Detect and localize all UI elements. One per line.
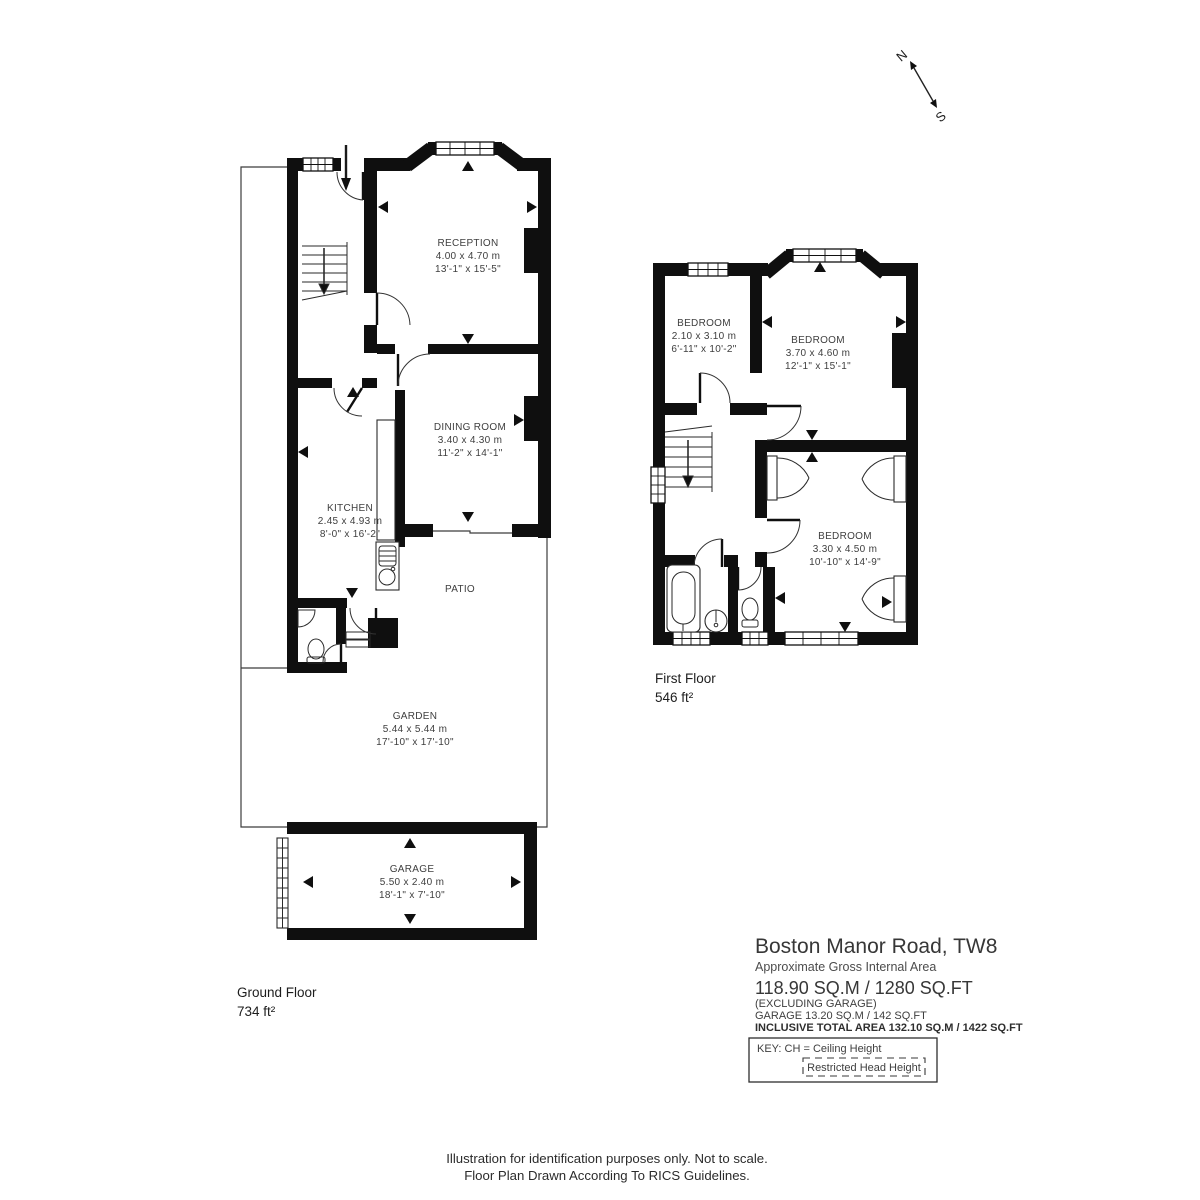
- svg-text:18'-1" x 7'-10": 18'-1" x 7'-10": [379, 890, 445, 901]
- key-box: KEY: CH = Ceiling Height Restricted Head…: [749, 1038, 937, 1082]
- room-label-garage: GARAGE 5.50 x 2.40 m 18'-1" x 7'-10": [379, 864, 445, 901]
- svg-text:5.50 x 2.40 m: 5.50 x 2.40 m: [380, 877, 445, 888]
- ground-floor-plan: RECEPTION 4.00 x 4.70 m 13'-1" x 15'-5" …: [237, 142, 551, 1019]
- svg-text:BEDROOM: BEDROOM: [677, 318, 731, 329]
- gf-chimney-dining: [524, 396, 538, 441]
- compass-south-label: S: [933, 108, 950, 125]
- ff-stairs-arrow: [683, 476, 693, 487]
- compass-south-arrowhead: [930, 99, 937, 108]
- kitchen-door: [334, 388, 362, 416]
- svg-text:10'-10" x 14'-9": 10'-10" x 14'-9": [809, 557, 881, 568]
- svg-text:BEDROOM: BEDROOM: [818, 531, 872, 542]
- key-restricted-label: Restricted Head Height: [807, 1062, 921, 1074]
- kitchen-sink: [376, 542, 399, 590]
- compass-north-label: N: [893, 47, 910, 65]
- svg-text:KITCHEN: KITCHEN: [327, 503, 373, 514]
- bedroom3-wardrobe-left: [767, 456, 809, 500]
- bathroom-sink: [705, 610, 727, 632]
- key-label: KEY: CH = Ceiling Height: [757, 1043, 881, 1055]
- svg-text:BEDROOM: BEDROOM: [791, 335, 845, 346]
- compass: N S: [893, 47, 949, 125]
- hall-window: [303, 158, 333, 171]
- footer-line1: Illustration for identification purposes…: [446, 1151, 768, 1166]
- svg-text:3.70 x 4.60 m: 3.70 x 4.60 m: [786, 348, 851, 359]
- svg-text:GARAGE: GARAGE: [390, 864, 435, 875]
- bathroom-window: [673, 632, 710, 645]
- room-label-bedroom3: BEDROOM 3.30 x 4.50 m 10'-10" x 14'-9": [809, 531, 881, 568]
- gf-walls: [287, 142, 551, 673]
- bedroom3-door: [767, 520, 800, 553]
- svg-text:DINING ROOM: DINING ROOM: [434, 422, 506, 433]
- compass-north-arrowhead: [910, 61, 917, 70]
- gf-stairs: [302, 242, 347, 300]
- inclusive-area: INCLUSIVE TOTAL AREA 132.10 SQ.M / 1422 …: [755, 1022, 1023, 1034]
- svg-text:11'-2" x 14'-1": 11'-2" x 14'-1": [437, 448, 502, 459]
- wc-window: [742, 632, 768, 645]
- gf-stairs-arrow: [319, 284, 329, 294]
- svg-text:5.44 x 5.44 m: 5.44 x 5.44 m: [383, 724, 448, 735]
- bedroom2-bay-window: [793, 249, 856, 262]
- patio-threshold: [433, 531, 512, 533]
- room-label-reception: RECEPTION 4.00 x 4.70 m 13'-1" x 15'-5": [435, 238, 501, 275]
- gf-chimney-reception: [524, 228, 538, 273]
- room-label-dining: DINING ROOM 3.40 x 4.30 m 11'-2" x 14'-1…: [434, 422, 506, 459]
- svg-text:3.40 x 4.30 m: 3.40 x 4.30 m: [438, 435, 503, 446]
- property-address: Boston Manor Road, TW8: [755, 935, 997, 958]
- gf-wc-basin: [298, 610, 315, 627]
- garage-door: [277, 838, 288, 928]
- first-floor-area: 546 ft²: [655, 690, 694, 705]
- svg-text:GARDEN: GARDEN: [393, 711, 438, 722]
- bedroom1-door: [700, 373, 730, 403]
- ff-wc-door: [738, 567, 761, 590]
- garage-area: GARAGE 13.20 SQ.M / 142 SQ.FT: [755, 1010, 927, 1022]
- room-label-bedroom1: BEDROOM 2.10 x 3.10 m 6'-11" x 10'-2": [671, 318, 736, 355]
- room-label-kitchen: KITCHEN 2.45 x 4.93 m 8'-0" x 16'-2": [318, 503, 383, 540]
- gross-area: 118.90 SQ.M / 1280 SQ.FT: [755, 978, 973, 998]
- footer: Illustration for identification purposes…: [446, 1151, 768, 1183]
- floorplan-page: N S: [0, 0, 1200, 1200]
- ff-stairs: [665, 426, 712, 492]
- svg-text:13'-1" x 15'-5": 13'-1" x 15'-5": [435, 264, 501, 275]
- wc-door: [323, 644, 341, 662]
- ff-fixtures: [667, 565, 758, 632]
- svg-text:12'-1" x 15'-1": 12'-1" x 15'-1": [785, 361, 851, 372]
- area-note: (EXCLUDING GARAGE): [755, 998, 877, 1010]
- svg-text:RECEPTION: RECEPTION: [437, 238, 498, 249]
- room-label-garden: GARDEN 5.44 x 5.44 m 17'-10" x 17'-10": [376, 711, 454, 748]
- reception-bay-window: [436, 142, 494, 155]
- room-label-bedroom2: BEDROOM 3.70 x 4.60 m 12'-1" x 15'-1": [785, 335, 851, 372]
- svg-text:17'-10" x 17'-10": 17'-10" x 17'-10": [376, 737, 454, 748]
- gf-toilet: [307, 639, 325, 663]
- title-subtitle: Approximate Gross Internal Area: [755, 960, 936, 974]
- ff-chimney-bedroom2: [892, 333, 906, 388]
- svg-text:4.00 x 4.70 m: 4.00 x 4.70 m: [436, 251, 501, 262]
- bedroom1-window: [688, 263, 728, 276]
- first-floor-label: First Floor: [655, 671, 716, 686]
- svg-text:8'-0" x 16'-2": 8'-0" x 16'-2": [320, 529, 380, 540]
- bathroom-door: [694, 539, 722, 567]
- ground-floor-label: Ground Floor: [237, 985, 317, 1000]
- dining-door: [398, 354, 430, 386]
- svg-text:2.10 x 3.10 m: 2.10 x 3.10 m: [672, 331, 737, 342]
- ground-floor-caption: Ground Floor 734 ft²: [237, 985, 317, 1019]
- back-steps: [346, 632, 370, 647]
- gf-doors: [323, 145, 512, 662]
- floorplan-canvas: N S: [0, 0, 1200, 1200]
- first-floor-caption: First Floor 546 ft²: [655, 671, 716, 705]
- title-block: Boston Manor Road, TW8 Approximate Gross…: [749, 935, 1023, 1082]
- room-label-patio: PATIO: [445, 584, 475, 595]
- first-floor-plan: BEDROOM 2.10 x 3.10 m 6'-11" x 10'-2" BE…: [651, 249, 918, 705]
- reception-door: [377, 293, 410, 325]
- bedroom3-window: [785, 632, 858, 645]
- svg-text:3.30 x 4.50 m: 3.30 x 4.50 m: [813, 544, 878, 555]
- entrance-door: [337, 145, 363, 200]
- footer-line2: Floor Plan Drawn According To RICS Guide…: [464, 1168, 750, 1183]
- bedroom3-wardrobe-right-top: [862, 456, 906, 502]
- svg-text:6'-11" x 10'-2": 6'-11" x 10'-2": [671, 344, 736, 355]
- landing-window: [651, 467, 665, 503]
- bedroom2-door: [767, 406, 801, 440]
- garage: GARAGE 5.50 x 2.40 m 18'-1" x 7'-10": [277, 822, 537, 940]
- bathtub: [667, 565, 700, 632]
- ff-toilet: [742, 598, 758, 627]
- ground-floor-area: 734 ft²: [237, 1004, 276, 1019]
- svg-text:2.45 x 4.93 m: 2.45 x 4.93 m: [318, 516, 383, 527]
